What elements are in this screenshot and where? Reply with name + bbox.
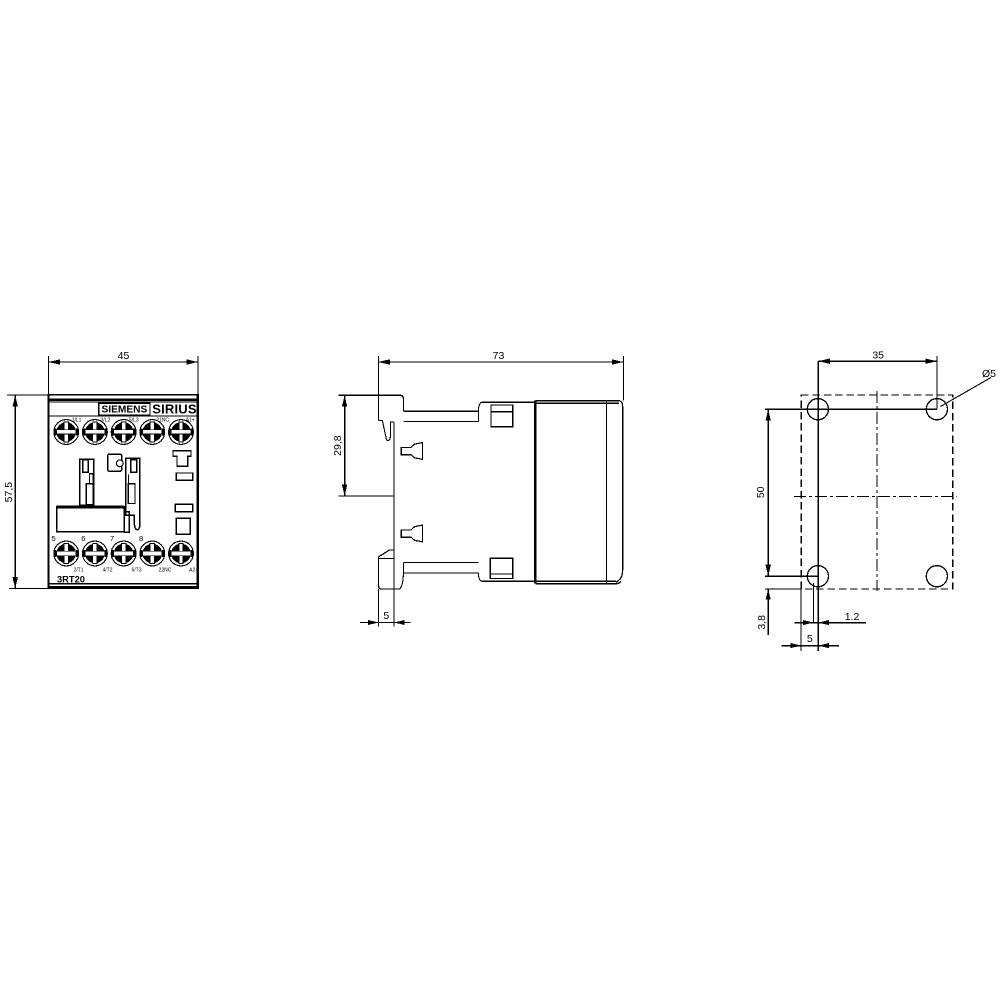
svg-text:3,8: 3,8: [756, 615, 768, 630]
svg-text:A2-: A2-: [189, 568, 197, 574]
svg-text:57,5: 57,5: [3, 482, 15, 503]
svg-text:Ø5: Ø5: [982, 368, 996, 380]
svg-text:29,8: 29,8: [332, 435, 344, 456]
svg-text:3RT20: 3RT20: [57, 574, 85, 584]
svg-text:5: 5: [383, 610, 389, 622]
svg-text:50: 50: [755, 486, 767, 498]
svg-text:6: 6: [81, 534, 85, 543]
svg-text:73: 73: [493, 350, 505, 362]
svg-text:7: 7: [110, 534, 114, 543]
svg-text:4/T2: 4/T2: [102, 568, 112, 574]
svg-text:5: 5: [807, 633, 813, 645]
svg-text:SIEMENS: SIEMENS: [101, 405, 147, 416]
svg-text:8: 8: [139, 534, 143, 543]
svg-text:35: 35: [872, 350, 884, 362]
svg-text:22NC: 22NC: [159, 568, 172, 574]
svg-text:5: 5: [52, 534, 56, 543]
svg-text:1.2: 1.2: [845, 611, 860, 623]
svg-text:2/T1: 2/T1: [73, 568, 83, 574]
svg-text:SIRIUS: SIRIUS: [152, 402, 197, 417]
svg-text:6/T3: 6/T3: [131, 568, 141, 574]
svg-text:45: 45: [118, 350, 130, 362]
